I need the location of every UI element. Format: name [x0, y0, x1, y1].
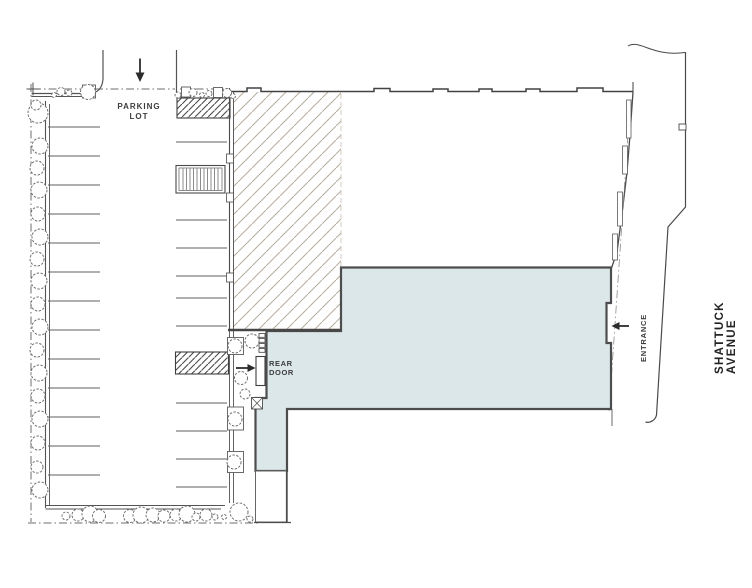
- curb-return: [628, 44, 685, 53]
- hatched-adjacent-space: [234, 92, 341, 330]
- rear-door-label: REAR DOOR: [269, 360, 309, 378]
- wall-door-symbol: [227, 154, 234, 163]
- tree-icon: [189, 89, 197, 97]
- planter-box: [214, 88, 223, 98]
- right-arrow-icon: [236, 364, 256, 372]
- tree-icon: [31, 461, 43, 473]
- tree-icon: [32, 319, 48, 335]
- street-label: SHATTUCK AVENUE: [714, 264, 738, 374]
- facade-bay: [623, 146, 628, 174]
- step: [259, 339, 265, 343]
- tree-icon: [192, 513, 200, 521]
- tree-icon: [32, 229, 48, 245]
- landscaping: [28, 85, 259, 524]
- tree-icon: [32, 138, 48, 154]
- tree-icon: [223, 89, 232, 98]
- tree-icon: [158, 510, 170, 522]
- parking-lot-label-line1: PARKING: [99, 102, 179, 112]
- facade-bay: [618, 192, 623, 226]
- tree-icon: [200, 93, 205, 98]
- exterior-stair: [176, 166, 225, 194]
- tree-icon: [30, 252, 44, 266]
- facade-bay: [613, 234, 618, 260]
- tree-icon: [31, 273, 47, 289]
- rear-door-symbol: [256, 357, 265, 386]
- planting-strip-mid: [176, 352, 229, 374]
- tree-icon: [31, 436, 45, 450]
- tree-icon: [31, 365, 47, 381]
- tree-icon: [31, 182, 47, 198]
- wall-door-symbol: [227, 193, 234, 202]
- parking-lot-label: PARKING LOT: [99, 102, 179, 121]
- left-arrow-icon: [612, 322, 630, 330]
- rear-door-label-line2: DOOR: [269, 369, 309, 378]
- tree-icon: [231, 94, 236, 99]
- rear-ramp: [256, 471, 287, 522]
- tree-icon: [222, 515, 227, 520]
- rear-steps: [259, 334, 265, 353]
- step: [259, 344, 265, 348]
- tree-icon: [228, 412, 242, 426]
- property-lines: [28, 84, 258, 523]
- tree-icon: [227, 455, 241, 469]
- curb-tick: [679, 124, 686, 130]
- tree-icon: [247, 516, 253, 522]
- tree-icon: [235, 372, 248, 385]
- tree-icon: [146, 508, 160, 522]
- wall-door-symbol: [227, 273, 234, 282]
- facade-pilasters: [613, 100, 632, 260]
- tree-icon: [212, 514, 218, 520]
- street-lines: [628, 44, 686, 422]
- tree-icon: [66, 90, 72, 96]
- step: [259, 334, 265, 338]
- tree-icon: [32, 411, 48, 427]
- tree-icon: [245, 334, 259, 348]
- sidewalk-curb-line: [646, 52, 686, 422]
- parking-lot-label-line2: LOT: [99, 112, 179, 122]
- tree-icon: [52, 93, 57, 98]
- tree-icon: [57, 88, 65, 96]
- tree-icon: [31, 100, 41, 110]
- tree-icon: [228, 339, 242, 353]
- building-north-facade: [229, 88, 633, 92]
- facade-bay: [627, 100, 632, 138]
- tree-icon: [31, 389, 45, 403]
- planting-strip-north: [177, 98, 230, 118]
- tree-icon: [200, 509, 212, 521]
- tree-icon: [240, 389, 250, 399]
- tree-icon: [230, 503, 248, 521]
- tree-icon: [32, 482, 48, 498]
- tree-icon: [93, 510, 106, 523]
- tree-icon: [30, 161, 44, 175]
- utility-box: [252, 398, 263, 410]
- tree-icon: [31, 207, 45, 221]
- tree-icon: [30, 343, 44, 357]
- tree-icon: [175, 92, 181, 98]
- tree-icon: [81, 85, 96, 100]
- step: [259, 349, 265, 353]
- entrance-label: ENTRANCE: [639, 292, 648, 362]
- down-arrow-icon: [136, 59, 145, 83]
- tree-icon: [62, 512, 70, 520]
- tree-icon: [206, 91, 212, 97]
- tree-icon: [31, 297, 45, 311]
- site-plan: PARKING LOT REAR DOOR ENTRANCE SHATTUCK …: [0, 0, 752, 588]
